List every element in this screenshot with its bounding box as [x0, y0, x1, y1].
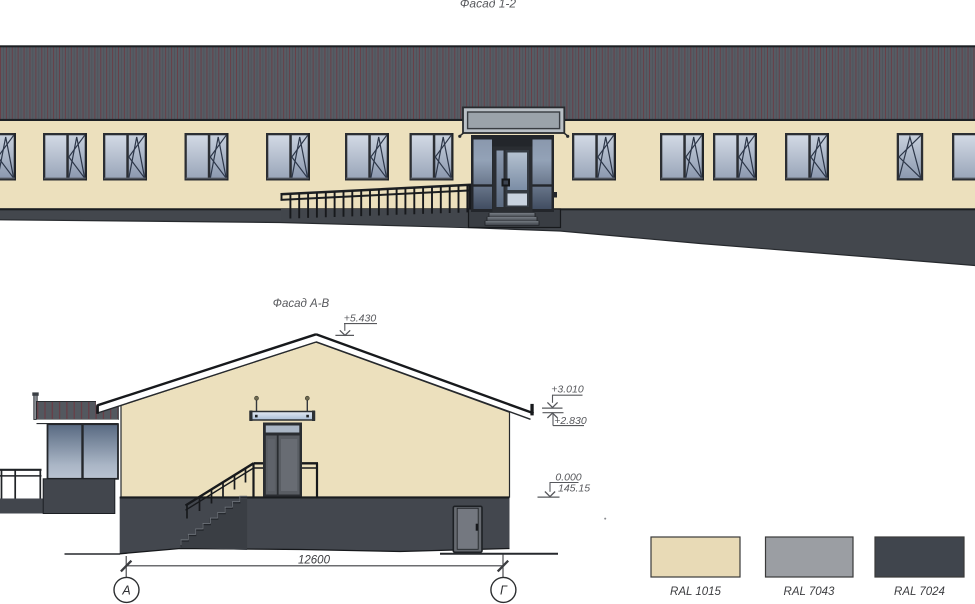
svg-text:RAL 7043: RAL 7043 [784, 586, 836, 598]
svg-text:Фасад А-В: Фасад А-В [273, 298, 330, 310]
svg-text:Г: Г [500, 583, 508, 597]
svg-text:А: А [121, 583, 130, 597]
svg-text:+5.430: +5.430 [344, 313, 377, 325]
svg-text:+3.010: +3.010 [551, 384, 584, 396]
svg-text:RAL 7024: RAL 7024 [894, 586, 945, 598]
svg-text:+2.830: +2.830 [554, 415, 587, 427]
svg-text:RAL 1015: RAL 1015 [670, 586, 722, 598]
svg-text:Фасад 1-2: Фасад 1-2 [460, 0, 517, 10]
svg-text:12600: 12600 [298, 555, 331, 567]
svg-text:145.15: 145.15 [558, 483, 590, 495]
